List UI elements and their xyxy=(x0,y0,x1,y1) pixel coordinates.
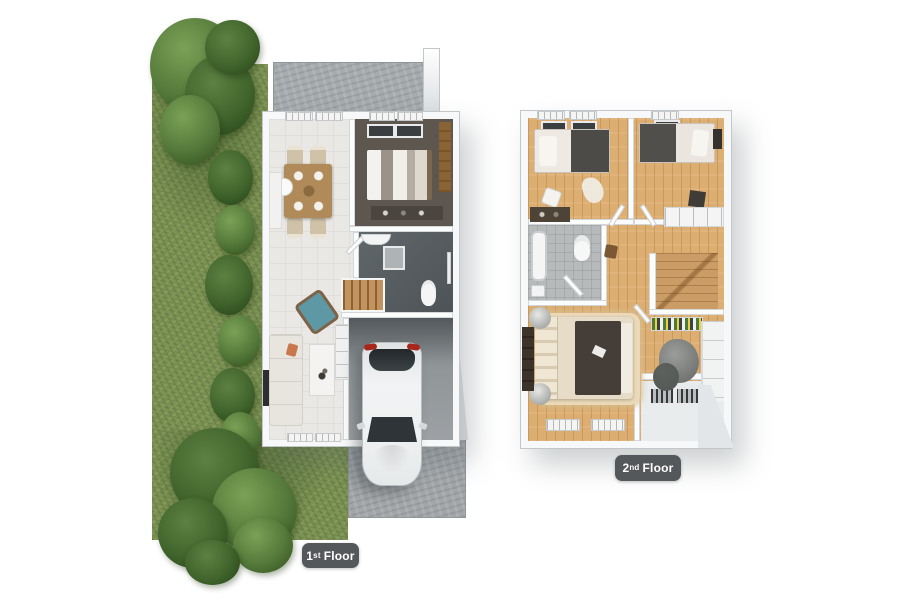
bed-pillow xyxy=(691,129,710,157)
balcony-vent-grill xyxy=(649,387,701,405)
second-floor-word: Floor xyxy=(643,461,674,475)
ceiling-vent xyxy=(395,124,423,138)
bathroom-door xyxy=(563,274,584,297)
dining-chair xyxy=(287,146,303,166)
single-bed xyxy=(639,123,715,163)
shrub xyxy=(208,150,253,205)
built-in-closet xyxy=(664,207,724,227)
bed-pillow xyxy=(539,136,557,166)
bathroom-cabinet xyxy=(383,246,405,270)
tv-screen xyxy=(263,370,269,406)
bathtub xyxy=(531,231,547,281)
tree-canopy xyxy=(160,95,220,165)
toilet xyxy=(421,284,436,306)
window xyxy=(569,111,597,120)
wardrobe xyxy=(439,122,451,192)
toilet xyxy=(574,241,590,261)
second-floor-label: 2ndFloor xyxy=(615,455,681,481)
shrub xyxy=(218,315,260,367)
media-console xyxy=(335,324,349,380)
bathroom-floor xyxy=(528,225,601,300)
tree-canopy xyxy=(185,540,240,585)
dresser xyxy=(371,206,443,220)
first-floor-plan xyxy=(262,111,460,447)
dining-chair xyxy=(310,218,326,238)
sofa xyxy=(269,334,303,426)
window xyxy=(369,112,395,121)
desk xyxy=(530,207,570,222)
window xyxy=(285,112,313,121)
wall xyxy=(649,253,656,315)
window xyxy=(287,433,313,442)
wall xyxy=(628,118,634,219)
bookshelf xyxy=(651,317,703,331)
window xyxy=(591,419,625,431)
tree-canopy xyxy=(233,518,293,573)
lounge-pouf xyxy=(653,363,679,391)
dining-chair xyxy=(310,146,326,166)
sideboard-cabinet xyxy=(269,172,282,229)
wall xyxy=(601,225,607,306)
wall xyxy=(349,119,355,226)
dark-wardrobe xyxy=(522,327,534,391)
wall xyxy=(649,309,724,315)
window xyxy=(546,419,580,431)
ceiling-vent xyxy=(367,124,395,138)
tree-canopy xyxy=(205,20,260,75)
folded-blanket xyxy=(621,323,632,393)
window xyxy=(651,111,679,120)
dining-chair xyxy=(287,218,303,238)
bed-duvet xyxy=(575,321,621,395)
windshield xyxy=(367,417,417,442)
window xyxy=(397,112,423,121)
bed-blanket xyxy=(640,124,676,162)
round-ottoman xyxy=(529,307,551,329)
rear-window xyxy=(369,349,415,371)
wall xyxy=(349,226,453,232)
second-floor-number: 2 xyxy=(622,461,629,475)
single-bed xyxy=(534,129,610,173)
window xyxy=(315,433,341,442)
first-floor-word: Floor xyxy=(324,549,355,563)
coffee-table xyxy=(309,344,335,396)
double-bed xyxy=(367,150,432,200)
floor-plan-rendering: 1stFloor 2ndFloor xyxy=(0,0,900,600)
bathroom-sink xyxy=(531,285,545,297)
shrub xyxy=(215,205,255,255)
patio-side-wall xyxy=(423,48,440,116)
wall-shelf xyxy=(713,129,722,149)
wood-stool xyxy=(604,244,618,259)
first-floor-number: 1 xyxy=(306,549,313,563)
window xyxy=(537,111,565,120)
staircase xyxy=(341,278,385,312)
master-bed xyxy=(535,317,633,399)
patio-terrace xyxy=(273,62,426,116)
side-mirror xyxy=(356,422,366,430)
bed-blanket xyxy=(571,130,609,172)
ottoman-cube xyxy=(688,190,706,208)
hood-contour xyxy=(371,445,413,475)
first-floor-label: 1stFloor xyxy=(302,543,359,568)
car-top-view xyxy=(362,342,422,486)
shrub xyxy=(205,255,253,315)
staircase xyxy=(656,253,718,309)
window xyxy=(315,112,343,121)
wall xyxy=(528,300,607,306)
shower-rail xyxy=(447,252,451,284)
